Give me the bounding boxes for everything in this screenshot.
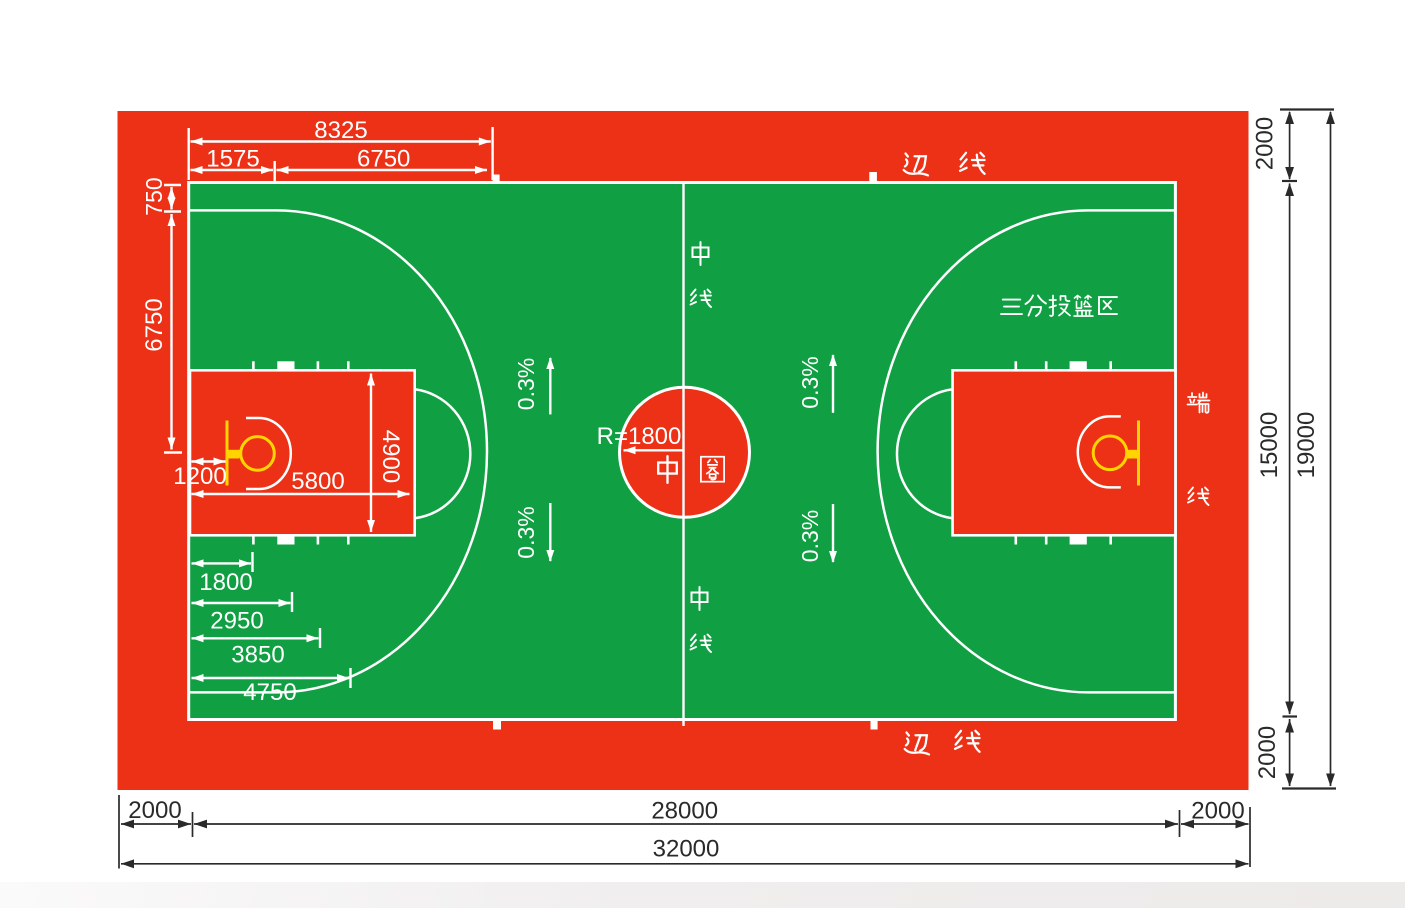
svg-text:4900: 4900: [377, 430, 404, 483]
svg-text:1575: 1575: [206, 146, 259, 173]
svg-text:1800: 1800: [199, 569, 252, 596]
svg-text:2000: 2000: [1252, 117, 1279, 170]
svg-text:6750: 6750: [357, 146, 410, 173]
svg-text:3850: 3850: [231, 642, 284, 669]
svg-text:2000: 2000: [128, 797, 181, 824]
svg-text:5800: 5800: [291, 468, 344, 495]
svg-text:15000: 15000: [1256, 412, 1283, 479]
svg-text:0.3%: 0.3%: [513, 358, 539, 410]
svg-text:2000: 2000: [1191, 798, 1244, 825]
svg-text:0.3%: 0.3%: [797, 510, 823, 562]
svg-text:2000: 2000: [1254, 726, 1281, 779]
svg-text:28000: 28000: [651, 798, 718, 825]
svg-text:19000: 19000: [1293, 412, 1320, 479]
svg-text:8325: 8325: [314, 117, 367, 144]
svg-text:4750: 4750: [243, 679, 296, 706]
svg-text:1200: 1200: [173, 463, 226, 490]
svg-text:0.3%: 0.3%: [513, 506, 539, 558]
svg-text:32000: 32000: [653, 836, 720, 863]
svg-text:750: 750: [141, 177, 167, 215]
svg-text:0.3%: 0.3%: [797, 356, 823, 408]
svg-text:R=1800: R=1800: [597, 423, 682, 450]
svg-text:6750: 6750: [141, 298, 168, 351]
svg-text:2950: 2950: [210, 608, 263, 635]
